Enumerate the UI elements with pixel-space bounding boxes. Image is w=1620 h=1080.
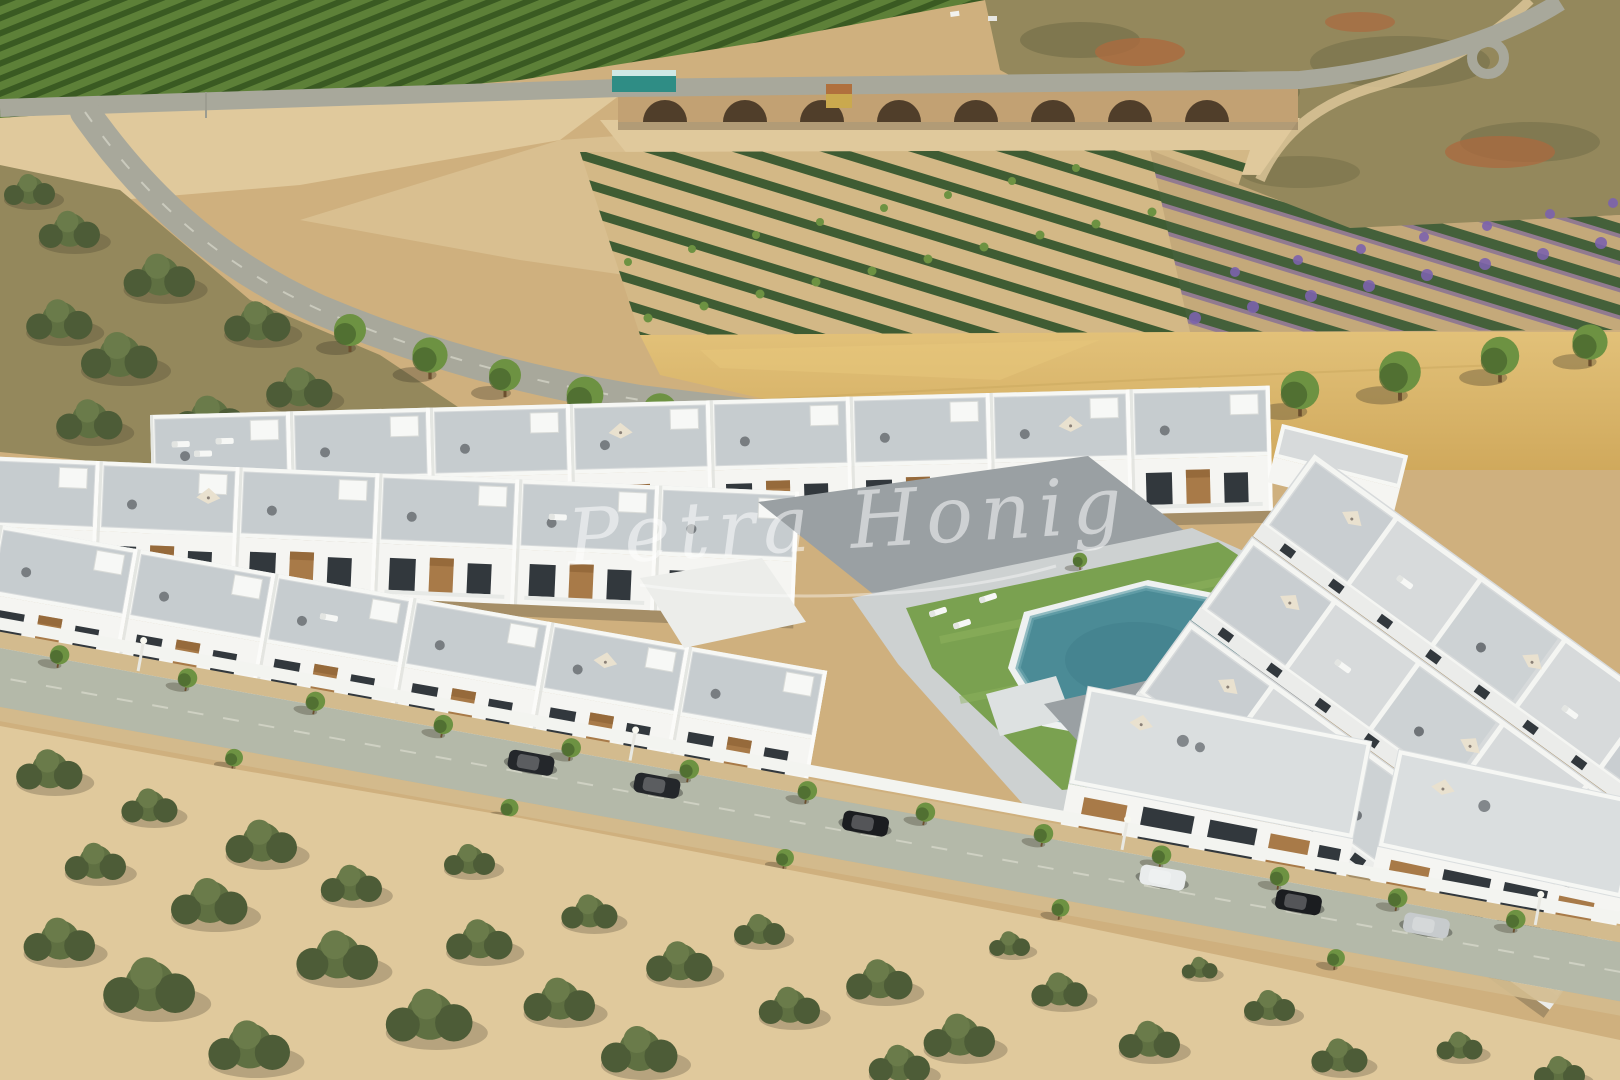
scene-canvas: Petra Honig (0, 0, 1620, 1080)
aerial-render: Petra Honig (0, 0, 1620, 1080)
vehicle-on-highway (988, 16, 997, 21)
red-dirt-patch (1095, 38, 1185, 66)
roof-lounger (216, 438, 234, 444)
utility-pole (205, 92, 207, 118)
roof-lounger (194, 450, 212, 456)
roof-lounger (172, 441, 190, 447)
roof-lounger (549, 514, 567, 521)
plantation-rows (580, 150, 1250, 335)
red-dirt-patch (1325, 12, 1395, 32)
red-dirt-patch (1445, 136, 1555, 168)
storage-building-teal (612, 70, 676, 92)
small-hut (826, 84, 852, 108)
